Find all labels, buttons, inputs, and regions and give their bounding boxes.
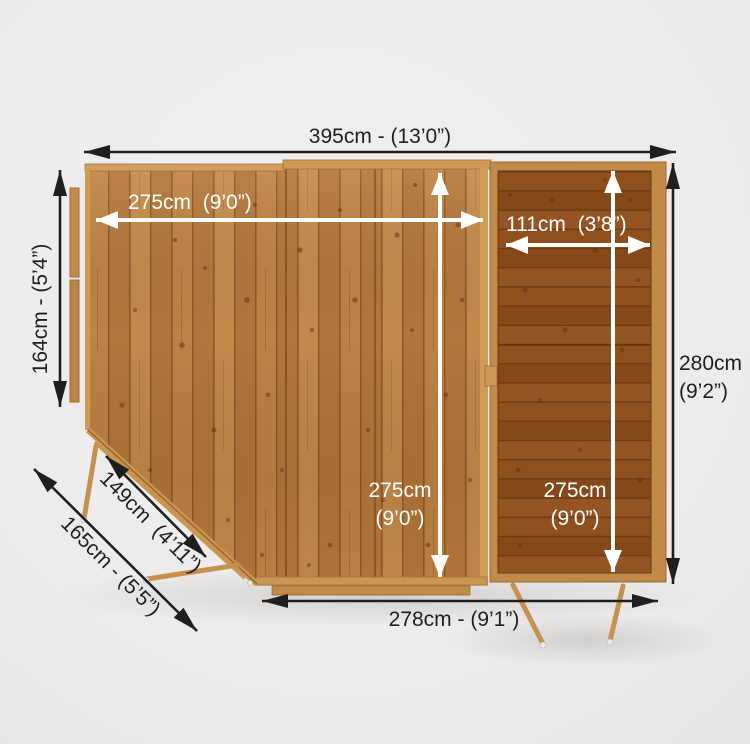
label-shed-depth-l1: 275cm <box>543 479 606 502</box>
floorplan-diagram: 395cm - (13’0”) 275cm (9’0”) 111cm (3’8”… <box>0 0 750 744</box>
label-overall-width: 395cm - (13’0”) <box>309 125 451 148</box>
label-right-depth-l1: 280cm <box>679 352 742 375</box>
label-right-depth-l2: (9’2”) <box>679 380 728 403</box>
label-shed-width: 111cm (3’8”) <box>506 213 627 236</box>
label-main-depth-l1: 275cm <box>368 479 431 502</box>
left-cladding-plank <box>70 280 79 402</box>
label-main-depth-l2: (9’0”) <box>375 507 424 530</box>
left-cladding-plank <box>70 188 79 277</box>
floorplan-svg: 395cm - (13’0”) 275cm (9’0”) 111cm (3’8”… <box>0 0 750 744</box>
label-bottom-width: 278cm - (9’1”) <box>389 608 520 631</box>
roof-cap-trim <box>85 164 285 171</box>
label-main-width: 275cm (9’0”) <box>128 191 252 214</box>
label-left-depth: 164cm - (5’4”) <box>29 244 52 375</box>
roof-cap-trim <box>283 160 491 169</box>
label-shed-depth-l2: (9’0”) <box>550 507 599 530</box>
floor-skid <box>272 586 470 595</box>
door-hinge <box>607 639 613 645</box>
roof-left-trim <box>85 168 90 430</box>
shed-joint-block <box>485 366 497 386</box>
door-hinge <box>540 642 546 648</box>
roof-bottom-trim <box>256 577 487 585</box>
door-hinge <box>248 581 253 586</box>
